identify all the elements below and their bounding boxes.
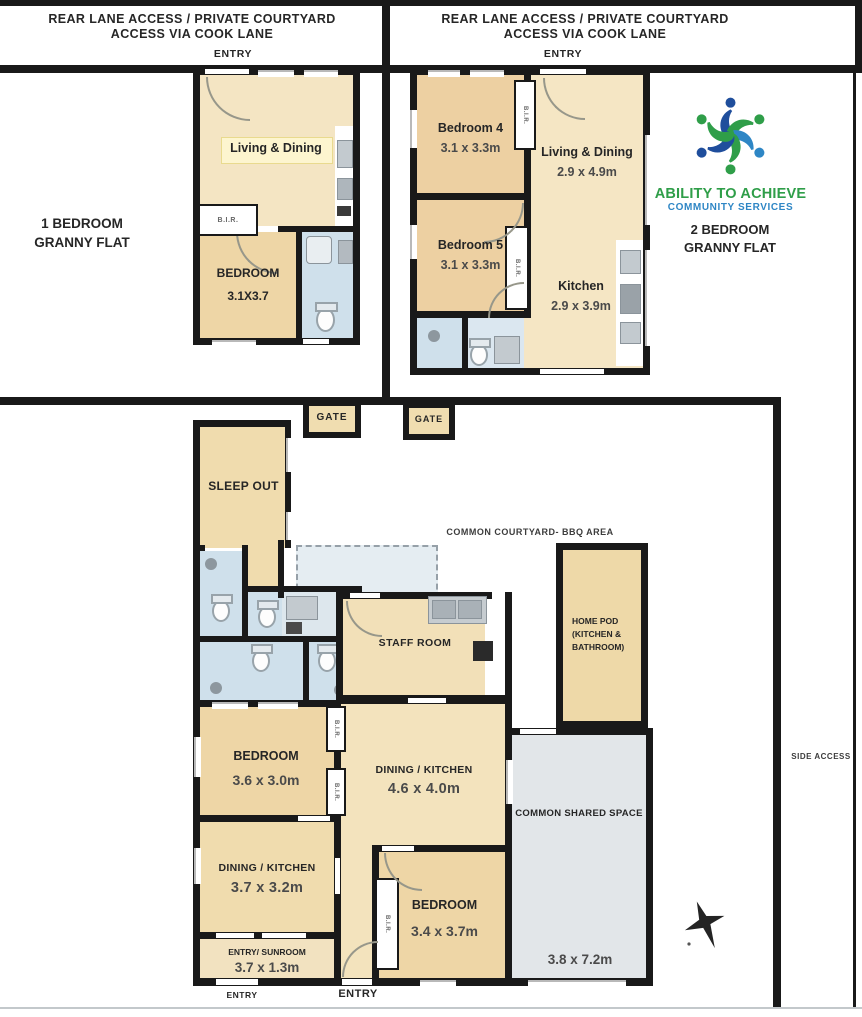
- sink-icon: [458, 600, 482, 619]
- bedroom-s-label: BEDROOM 3.4 x 3.7m: [392, 892, 497, 944]
- header-left: REAR LANE ACCESS / PRIVATE COURTYARD ACC…: [8, 12, 376, 42]
- living-2br-name: Living & Dining: [531, 142, 643, 162]
- common-right-wall: [646, 728, 653, 985]
- unit-title-1br-line2: GRANNY FLAT: [6, 233, 158, 252]
- sunroom-name: ENTRY/ SUNROOM: [204, 946, 330, 959]
- sink-icon: [337, 178, 353, 200]
- side-boundary-wall: [773, 397, 781, 1008]
- room-common-shared: [512, 735, 646, 978]
- top-boundary-wall: [0, 0, 862, 6]
- common-shared-dims: 3.8 x 7.2m: [528, 952, 632, 968]
- home-pod-label: HOME POD (KITCHEN & BATHROOM): [566, 615, 644, 654]
- gate-right: GATE: [403, 402, 455, 440]
- flat1-window-top1: [258, 70, 294, 77]
- logo-org-name: ABILITY TO ACHIEVE: [648, 186, 813, 203]
- room-bathroom-2br: [417, 318, 462, 368]
- staff-wall-left: [336, 592, 343, 702]
- bedroom4-dims: 3.1 x 3.3m: [417, 138, 524, 158]
- sink-icon: [432, 600, 456, 619]
- living-2br-label: Living & Dining 2.9 x 4.9m: [531, 142, 643, 182]
- ability-to-achieve-logo-icon: [668, 86, 793, 186]
- bedroom-nw-dims: 3.6 x 3.0m: [206, 768, 326, 792]
- unit-title-2br: 2 BEDROOM GRANNY FLAT: [650, 221, 810, 257]
- sleepout-wall-top: [193, 420, 291, 427]
- logo-tagline: COMMUNITY SERVICES: [648, 202, 813, 214]
- bedroom-1br-label: BEDROOM 3.1X3.7: [200, 262, 296, 308]
- bedroom4-label: Bedroom 4 3.1 x 3.3m: [417, 118, 524, 158]
- bir-label: B.I.R.: [333, 720, 339, 738]
- dining-sw-name: DINING / KITCHEN: [204, 860, 330, 876]
- staff-room-label: STAFF ROOM: [355, 637, 475, 650]
- shower-tray-icon: [306, 236, 332, 264]
- dining-mid-label: DINING / KITCHEN 4.6 x 4.0m: [360, 762, 488, 800]
- batha-right-wall: [242, 545, 248, 642]
- bottom-divider-line: [0, 1007, 862, 1009]
- dining-mid-name: DINING / KITCHEN: [360, 762, 488, 778]
- bedroom-nw-label: BEDROOM 3.6 x 3.0m: [206, 744, 326, 792]
- flat1-bath-top-wall: [302, 226, 360, 232]
- laundry-counter-icon: [286, 596, 318, 620]
- gate-left-label: GATE: [309, 412, 355, 424]
- flat2-wall-bottom: [410, 368, 650, 375]
- bedroom4-name: Bedroom 4: [417, 118, 524, 138]
- shower-icon: [210, 682, 222, 694]
- header-left-line2: ACCESS VIA COOK LANE: [8, 27, 376, 42]
- living-2br-dims: 2.9 x 4.9m: [531, 162, 643, 182]
- staff-corridor-right-wall: [505, 592, 512, 704]
- home-pod-line1: HOME POD: [572, 615, 644, 628]
- top-right-border-wall: [855, 0, 862, 72]
- bir-closet-bednw-1: B.I.R.: [326, 706, 346, 752]
- toilet-tank-icon: [251, 644, 273, 654]
- compass-icon: [682, 898, 728, 952]
- header-left-line1: REAR LANE ACCESS / PRIVATE COURTYARD: [8, 12, 376, 27]
- unit-title-2br-line2: GRANNY FLAT: [650, 239, 810, 257]
- dining-mid-dims: 4.6 x 4.0m: [360, 778, 488, 800]
- bir-label: B.I.R.: [333, 783, 339, 801]
- bedroom-nw-name: BEDROOM: [206, 744, 326, 768]
- sleepout-wall-left: [193, 420, 200, 605]
- bir-closet-bednw-2: B.I.R.: [326, 768, 346, 816]
- header-right-line1: REAR LANE ACCESS / PRIVATE COURTYARD: [400, 12, 770, 27]
- bir-closet-1br: B.I.R.: [198, 204, 258, 236]
- dining-sw-label: DINING / KITCHEN 3.7 x 3.2m: [204, 860, 330, 900]
- bedroom-1br-dims: 3.1X3.7: [200, 285, 296, 308]
- dksw-right-wall: [334, 822, 341, 985]
- toilet-tank-icon: [257, 600, 279, 610]
- dining-sw-dims: 3.7 x 3.2m: [204, 876, 330, 900]
- home-pod-line3: BATHROOM): [572, 641, 644, 654]
- header-right: REAR LANE ACCESS / PRIVATE COURTYARD ACC…: [400, 12, 770, 42]
- center-divider-wall: [382, 0, 390, 400]
- sunroom-label: ENTRY/ SUNROOM 3.7 x 1.3m: [204, 946, 330, 977]
- entry-label-right-flat: ENTRY: [533, 48, 593, 61]
- flat2-bed45-divider-wall: [410, 193, 531, 200]
- flat1-wall-right: [353, 68, 360, 345]
- washer-icon: [494, 336, 520, 364]
- bir-label: B.I.R.: [384, 915, 390, 933]
- flat1-window-bottom: [212, 340, 256, 347]
- home-pod-line2: (KITCHEN &: [572, 628, 644, 641]
- toilet-tank-icon: [315, 302, 338, 312]
- bathcd-divider: [303, 636, 309, 706]
- shower-icon: [428, 330, 440, 342]
- unit-title-1br-line1: 1 BEDROOM: [6, 214, 158, 233]
- right-edge-wall: [853, 72, 856, 1008]
- sink-icon: [620, 250, 641, 274]
- flat2-bath-divider-wall: [462, 318, 468, 375]
- sunroom-dims: 3.7 x 1.3m: [204, 959, 330, 977]
- bedroom5-dims: 3.1 x 3.3m: [417, 255, 524, 275]
- vanity-icon: [338, 240, 353, 264]
- bedroom-s-dims: 3.4 x 3.7m: [392, 918, 497, 944]
- house-left-wall-upper: [193, 600, 200, 707]
- entry-label-house-left: ENTRY: [212, 990, 272, 1000]
- flat1-entry-gap: [205, 69, 249, 74]
- site-boundary-wall: [0, 397, 781, 405]
- courtyard-label: COMMON COURTYARD- BBQ AREA: [436, 527, 624, 538]
- toilet-tank-icon: [469, 338, 491, 348]
- common-shared-label: COMMON SHARED SPACE: [514, 808, 644, 819]
- staff-notch-block: [473, 641, 493, 661]
- flat1-bath-left-wall: [296, 226, 302, 339]
- side-access-label: SIDE ACCESS: [786, 752, 856, 762]
- floor-plan-canvas: REAR LANE ACCESS / PRIVATE COURTYARD ACC…: [0, 0, 862, 1017]
- bedroom-1br-name: BEDROOM: [200, 262, 296, 285]
- unit-title-1br: 1 BEDROOM GRANNY FLAT: [6, 214, 158, 252]
- counter-end-1br: [337, 206, 351, 216]
- bench-icon: [620, 322, 641, 344]
- bedroom5-name: Bedroom 5: [417, 235, 524, 255]
- toilet-tank-icon: [211, 594, 233, 604]
- gate-right-label: GATE: [409, 414, 449, 425]
- sleep-out-label: SLEEP OUT: [196, 479, 291, 493]
- bir-label: B.I.R.: [218, 217, 239, 224]
- appliance-dark: [286, 622, 302, 634]
- entry-label-house-mid: ENTRY: [326, 988, 390, 1001]
- flat1-window-top2: [304, 70, 338, 77]
- entry-label-left-flat: ENTRY: [203, 48, 263, 61]
- unit-title-2br-line1: 2 BEDROOM: [650, 221, 810, 239]
- stove-icon: [620, 284, 641, 314]
- gate-left: GATE: [303, 400, 361, 438]
- bedroom5-label: Bedroom 5 3.1 x 3.3m: [417, 235, 524, 275]
- stove-icon: [337, 140, 353, 168]
- header-right-line2: ACCESS VIA COOK LANE: [400, 27, 770, 42]
- bedroom-s-name: BEDROOM: [392, 892, 497, 918]
- flat2-entry-gap: [540, 69, 586, 74]
- flat1-door-gap-bottom: [303, 339, 329, 344]
- shower-icon: [205, 558, 217, 570]
- living-dining-1br-label: Living & Dining: [221, 141, 331, 156]
